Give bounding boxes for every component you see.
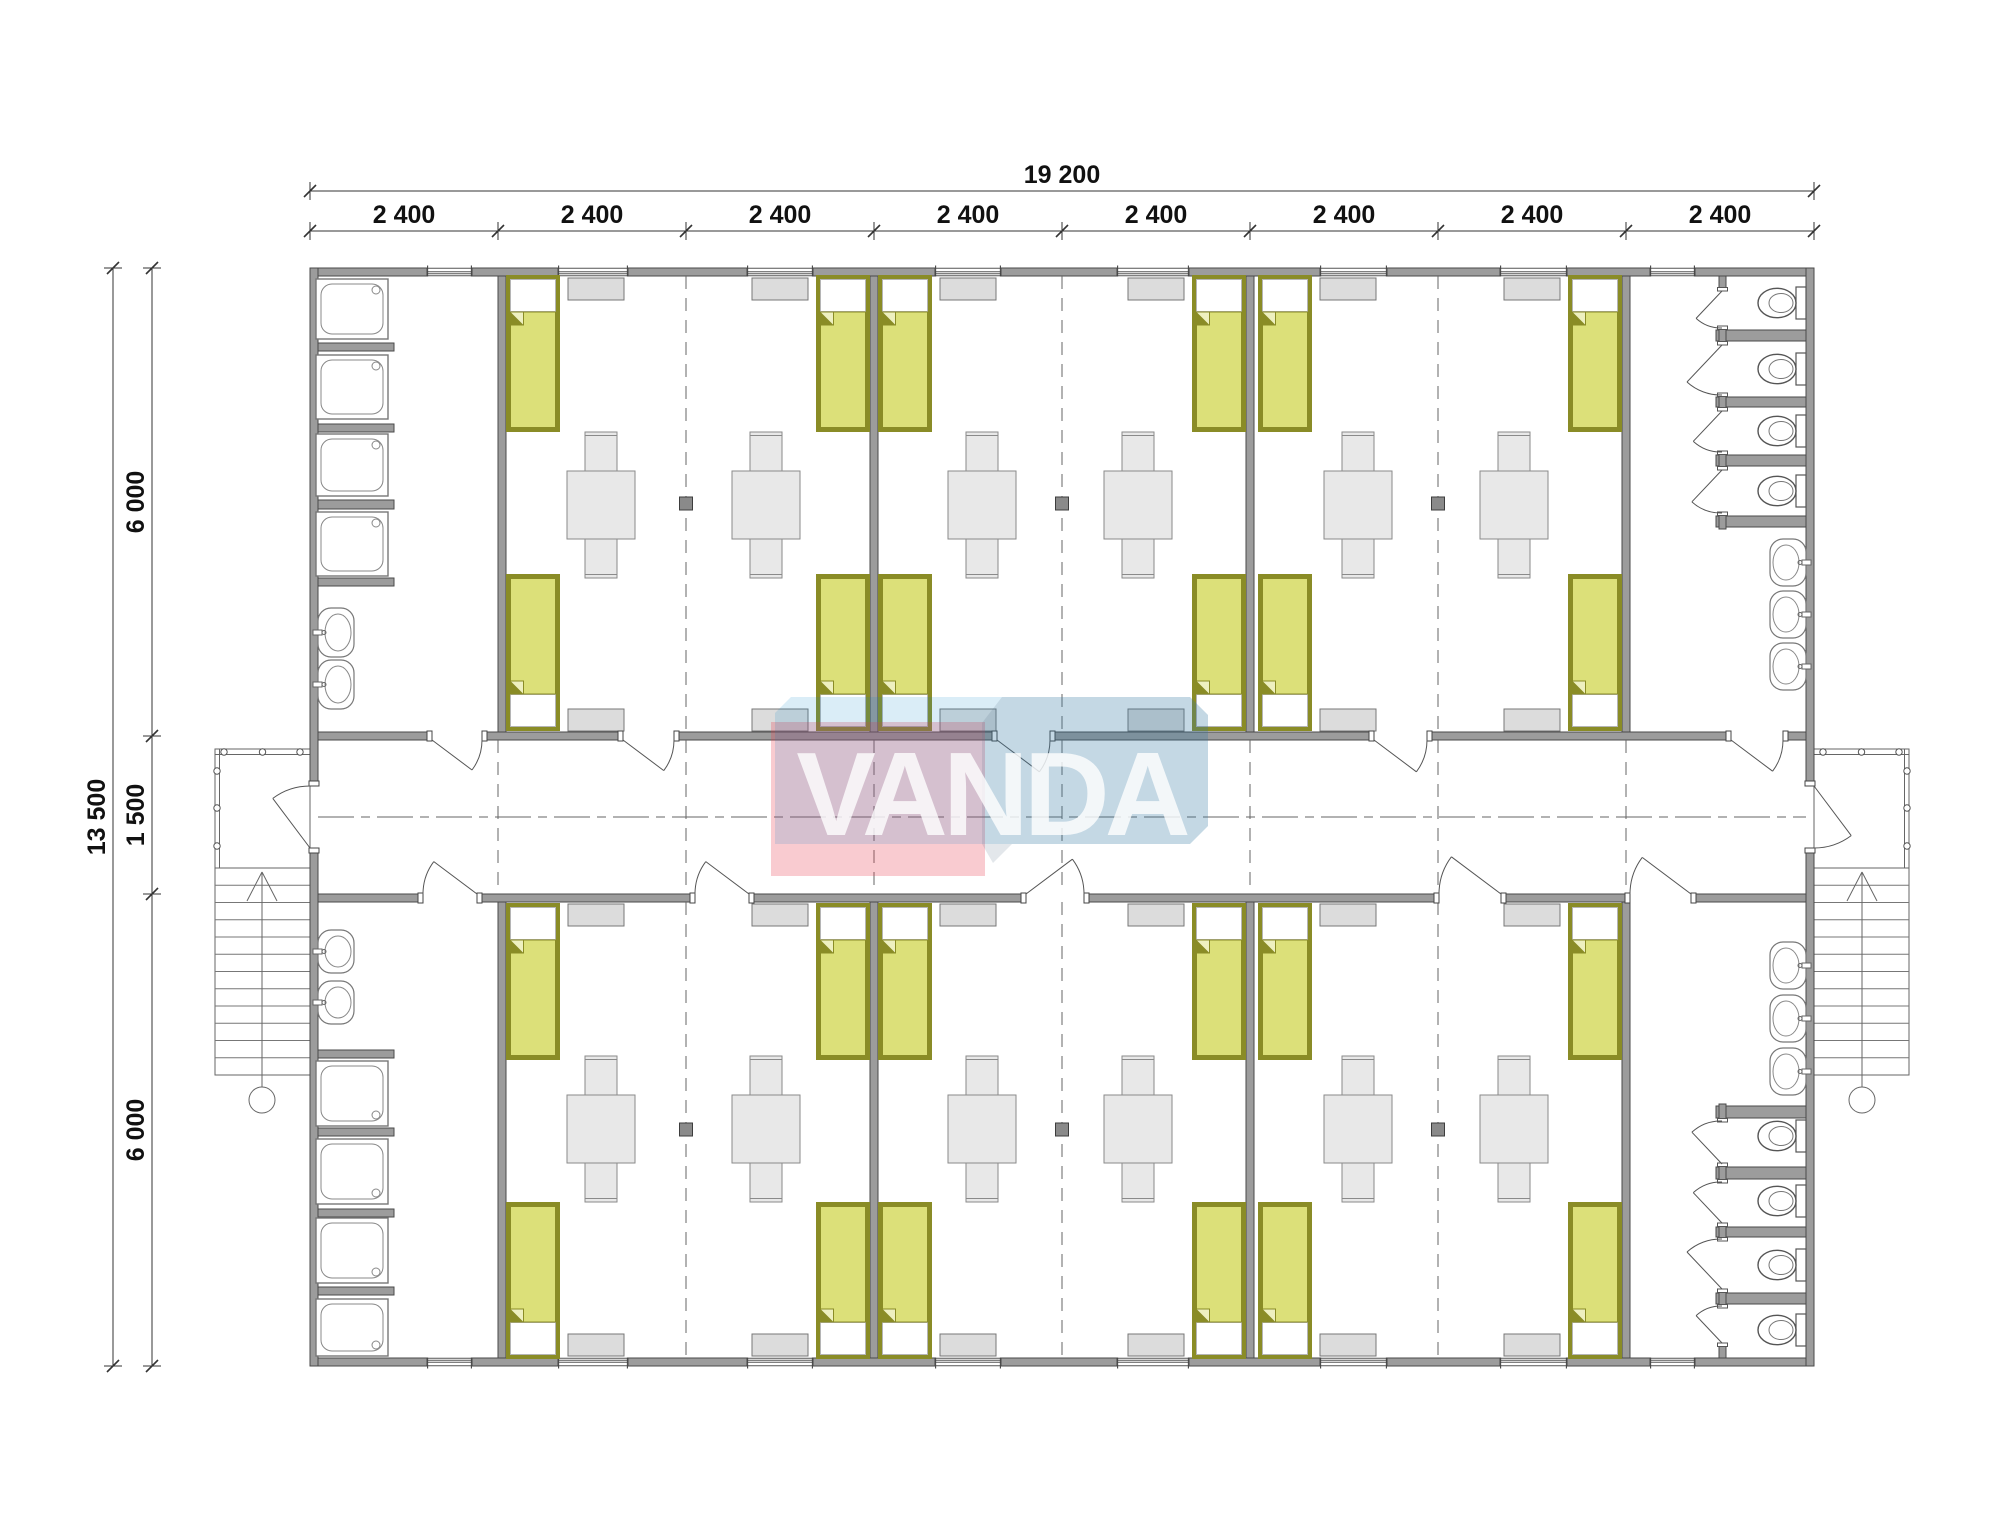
- svg-text:2 400: 2 400: [1689, 201, 1752, 229]
- svg-text:13 500: 13 500: [83, 779, 111, 855]
- svg-text:VANDA: VANDA: [796, 728, 1187, 861]
- svg-text:2 400: 2 400: [749, 201, 812, 229]
- svg-text:2 400: 2 400: [1125, 201, 1188, 229]
- svg-text:2 400: 2 400: [561, 201, 624, 229]
- svg-text:19 200: 19 200: [1024, 161, 1100, 189]
- svg-text:2 400: 2 400: [1313, 201, 1376, 229]
- svg-text:2 400: 2 400: [1501, 201, 1564, 229]
- svg-text:6 000: 6 000: [122, 471, 150, 534]
- svg-text:2 400: 2 400: [937, 201, 1000, 229]
- svg-text:1 500: 1 500: [122, 784, 150, 847]
- svg-text:6 000: 6 000: [122, 1099, 150, 1162]
- svg-text:2 400: 2 400: [373, 201, 436, 229]
